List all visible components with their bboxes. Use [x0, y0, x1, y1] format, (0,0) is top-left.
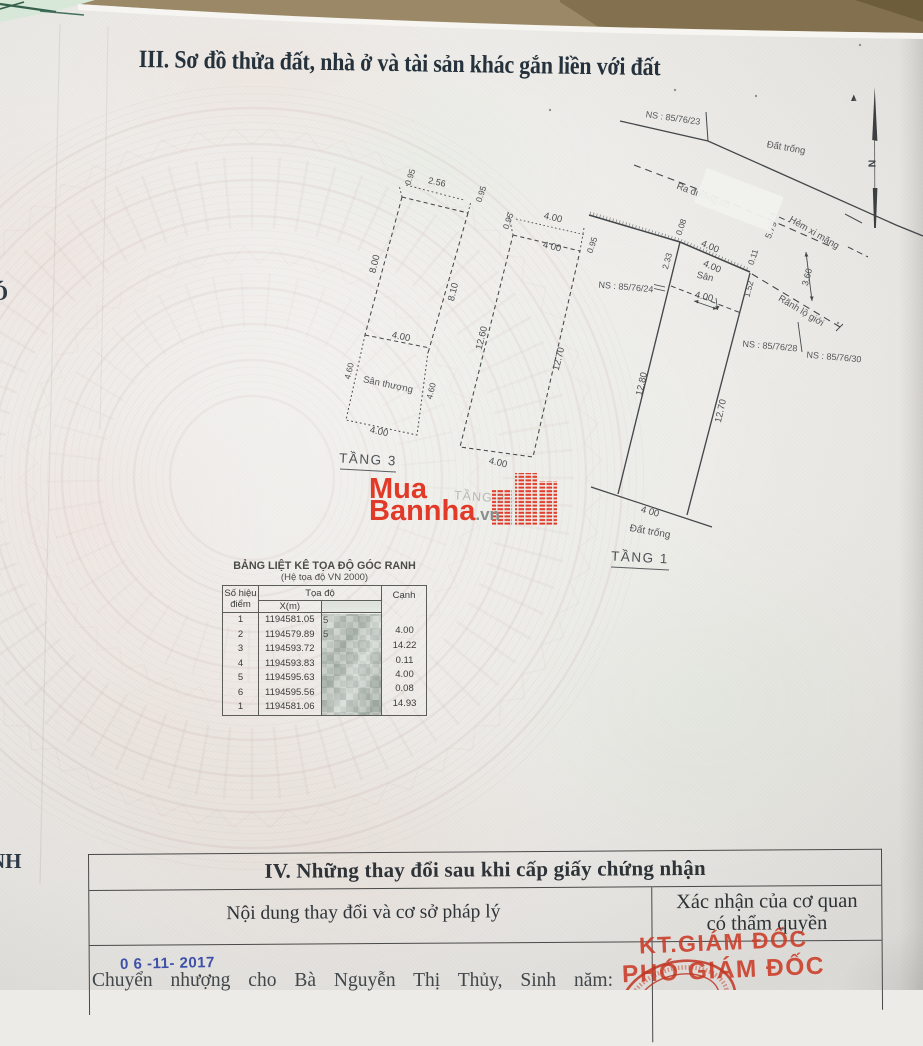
- svg-text:0.11: 0.11: [746, 248, 761, 266]
- svg-text:1.52: 1.52: [742, 279, 756, 298]
- svg-text:Đất trống: Đất trống: [766, 139, 806, 157]
- svg-text:4 00: 4 00: [640, 504, 661, 519]
- svg-text:12.70: 12.70: [713, 398, 729, 424]
- svg-text:8.10: 8.10: [446, 282, 461, 303]
- svg-text:NS : 85/76/28: NS : 85/76/28: [742, 339, 798, 354]
- svg-text:4.00: 4.00: [391, 330, 411, 345]
- svg-text:Hẻm xi măng: Hẻm xi măng: [787, 214, 841, 252]
- svg-text:NS : 85/76/23: NS : 85/76/23: [645, 109, 701, 127]
- svg-text:2.56: 2.56: [427, 175, 446, 189]
- svg-text:4.60: 4.60: [424, 382, 438, 401]
- svg-text:4.60: 4.60: [342, 362, 356, 381]
- svg-text:0.95: 0.95: [403, 167, 418, 186]
- svg-text:TẦNG 1: TẦNG 1: [611, 548, 669, 566]
- svg-text:TẦNG 3: TẦNG 3: [339, 450, 397, 468]
- svg-text:4.00: 4.00: [699, 238, 720, 255]
- svg-text:N: N: [866, 160, 878, 168]
- svg-text:12.70: 12.70: [551, 346, 567, 372]
- svg-text:0.95: 0.95: [585, 235, 600, 254]
- svg-text:3.60: 3.60: [800, 267, 814, 287]
- svg-text:NS : 85/76/30: NS : 85/76/30: [806, 350, 862, 365]
- svg-text:4 00: 4 00: [542, 240, 563, 255]
- svg-text:Sân: Sân: [696, 270, 715, 285]
- svg-text:0.08: 0.08: [674, 217, 689, 236]
- svg-text:2.33: 2.33: [660, 251, 674, 270]
- svg-text:4.00: 4.00: [543, 211, 564, 226]
- svg-text:Sân thượng: Sân thượng: [362, 374, 414, 395]
- svg-text:NS : 85/76/24: NS : 85/76/24: [598, 280, 654, 295]
- svg-text:8.00: 8.00: [367, 254, 382, 275]
- svg-text:12.80: 12.80: [634, 371, 650, 397]
- svg-text:Rãnh lộ giới: Rãnh lộ giới: [776, 293, 825, 329]
- svg-text:0.95: 0.95: [474, 184, 489, 203]
- svg-text:4.00: 4.00: [369, 425, 389, 440]
- svg-text:4.00: 4.00: [488, 456, 509, 471]
- svg-text:0.95: 0.95: [501, 211, 516, 230]
- svg-text:Đất trống: Đất trống: [629, 522, 672, 541]
